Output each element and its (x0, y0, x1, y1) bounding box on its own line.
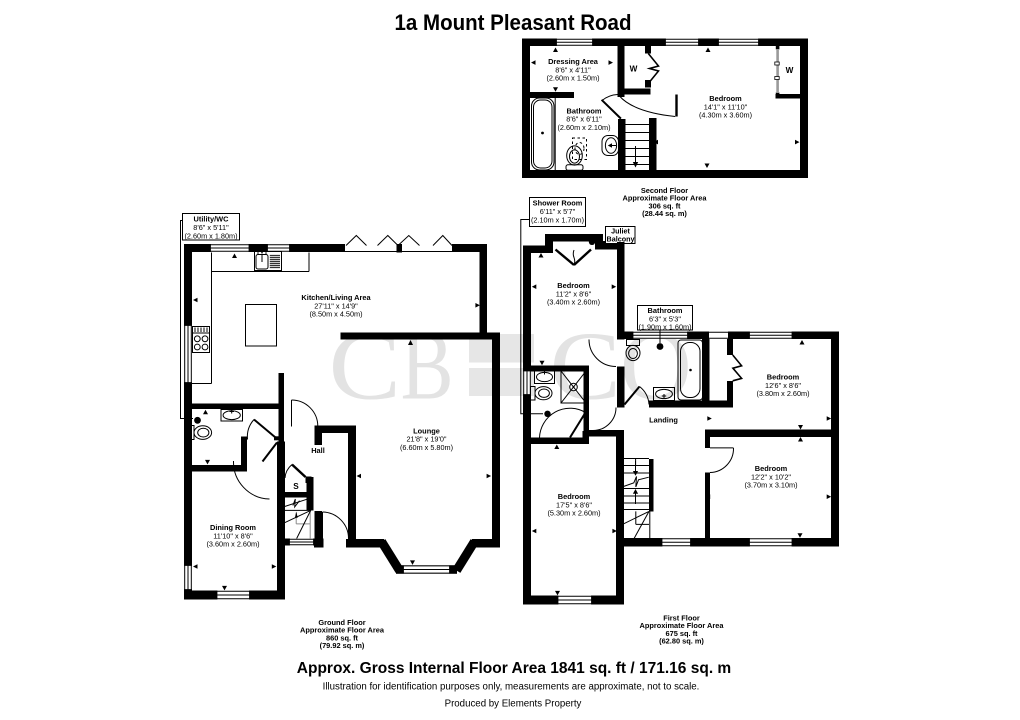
svg-text:(3.60m x 2.60m): (3.60m x 2.60m) (206, 540, 259, 549)
svg-text:(2.60m x 2.10m): (2.60m x 2.10m) (557, 123, 610, 132)
svg-text:W: W (786, 66, 794, 75)
svg-text:(62.80 sq. m): (62.80 sq. m) (659, 637, 704, 646)
svg-text:(5.30m x 2.60m): (5.30m x 2.60m) (547, 509, 600, 518)
svg-text:Hall: Hall (311, 446, 325, 455)
svg-text:B: B (401, 313, 454, 421)
svg-text:Illustration for identificatio: Illustration for identification purposes… (323, 682, 700, 693)
svg-text:C: C (329, 312, 401, 420)
svg-text:1a Mount Pleasant Road: 1a Mount Pleasant Road (395, 10, 632, 35)
svg-text:Produced by Elements Property: Produced by Elements Property (445, 699, 582, 710)
svg-text:(3.80m x 2.60m): (3.80m x 2.60m) (756, 389, 809, 398)
svg-text:(3.40m x 2.60m): (3.40m x 2.60m) (547, 298, 600, 307)
svg-text:(1.90m x 1.60m): (1.90m x 1.60m) (638, 323, 691, 332)
svg-text:(3.70m x 3.10m): (3.70m x 3.10m) (744, 481, 797, 490)
svg-text:(2.60m x 1.50m): (2.60m x 1.50m) (546, 74, 599, 83)
svg-text:(8.50m x 4.50m): (8.50m x 4.50m) (309, 310, 362, 319)
svg-text:(4.30m x 3.60m): (4.30m x 3.60m) (699, 111, 752, 120)
svg-text:(2.60m x 1.80m): (2.60m x 1.80m) (184, 231, 237, 240)
svg-text:Approx. Gross Internal Floor A: Approx. Gross Internal Floor Area 1841 s… (297, 660, 731, 677)
svg-text:Landing: Landing (649, 416, 678, 425)
svg-text:(2.10m x 1.70m): (2.10m x 1.70m) (531, 216, 584, 225)
svg-text:S: S (293, 482, 299, 491)
svg-text:(79.92 sq. m): (79.92 sq. m) (320, 641, 365, 650)
svg-text:(6.60m x 5.80m): (6.60m x 5.80m) (400, 443, 453, 452)
svg-text:W: W (630, 65, 638, 74)
svg-text:(28.44 sq. m): (28.44 sq. m) (642, 209, 687, 218)
